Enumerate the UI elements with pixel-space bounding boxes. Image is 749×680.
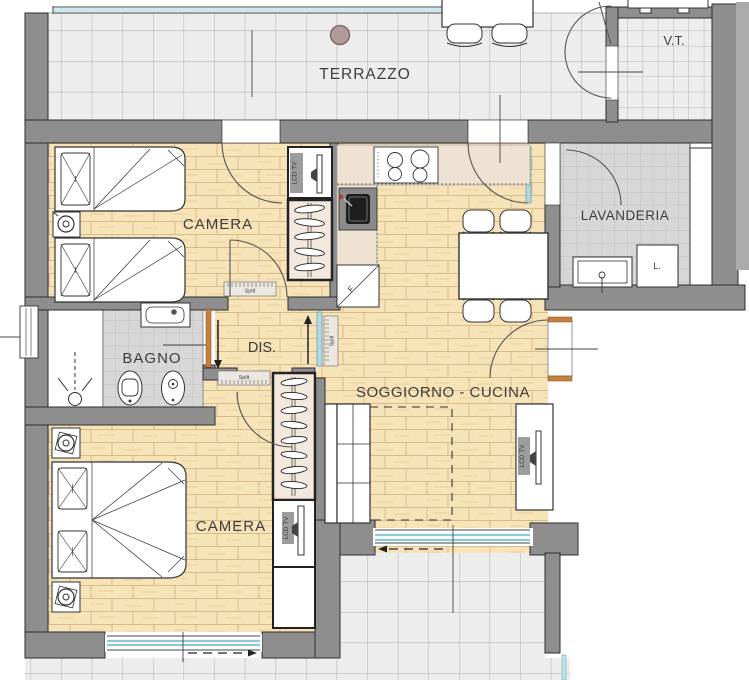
wall-camera2-bottom-l — [25, 632, 105, 658]
split-label-camera2: Split — [239, 375, 250, 381]
nightstand-lamp-top — [52, 428, 80, 458]
floor-plan: TERRAZZO V.T. CAMERA LAVANDERIA L. BAGNO… — [0, 0, 749, 680]
lavanderia-label: LAVANDERIA — [581, 208, 670, 223]
terrace-door-opening-soggiorno — [468, 120, 528, 143]
wall-vt-left-b — [606, 98, 618, 122]
camera1-wardrobe — [288, 200, 332, 280]
nightstand-lamp-bottom — [52, 582, 80, 612]
floor-plan-canvas: TERRAZZO V.T. CAMERA LAVANDERIA L. BAGNO… — [0, 0, 749, 680]
bidet — [162, 371, 185, 405]
wall-terrace-column — [545, 553, 560, 653]
cooktop — [374, 147, 438, 183]
toilet — [118, 371, 142, 405]
door-threshold-top — [548, 317, 572, 322]
wall-bagno-bottom — [25, 407, 215, 425]
washer-label: L. — [653, 261, 661, 271]
wall-right-edge — [736, 2, 749, 270]
nightstand-lamp — [53, 212, 80, 237]
bottom-terrace-floor — [25, 658, 570, 680]
wall-top-2 — [280, 120, 468, 143]
sofa — [325, 404, 370, 523]
split-label-camera1: Split — [245, 289, 256, 295]
camera2-cabinet — [273, 567, 315, 628]
camera2-sliding-window — [105, 634, 262, 652]
bagno-door-leaf — [206, 309, 211, 367]
entry-door-opening — [548, 321, 572, 376]
vt-label: V.T. — [663, 33, 684, 48]
lcd-tv-label-soggiorno: LCD TV — [519, 444, 526, 468]
wall-right — [712, 4, 738, 308]
wall-camera2-bottom-r — [262, 632, 315, 658]
camera2-label: CAMERA — [196, 518, 266, 535]
wall-vt-top — [606, 7, 716, 18]
double-bed — [52, 462, 186, 578]
lcd-tv-label-camera2: LCD TV — [283, 516, 290, 540]
dis-label: DIS. — [248, 340, 276, 356]
door-threshold-bottom — [548, 376, 572, 381]
dis-glass-partition — [317, 312, 322, 366]
camera1-label: CAMERA — [183, 216, 253, 233]
camera2-tv-cabinet — [273, 500, 315, 567]
bathroom-sink — [141, 303, 190, 327]
shaft — [690, 148, 712, 285]
wall-soggiorno-terrace-l — [340, 520, 375, 555]
bagno-label: BAGNO — [122, 350, 181, 367]
terrace-door-opening-camera1 — [222, 120, 280, 143]
lavanderia-door-opening — [545, 143, 560, 205]
soggiorno-label: SOGGIORNO - CUCINA — [356, 384, 530, 401]
vt-door-opening — [606, 46, 618, 100]
split-label-soggiorno: Split — [330, 335, 336, 346]
single-bed-1 — [55, 147, 185, 211]
bagno-window — [20, 306, 38, 358]
wall-vt-left-a — [606, 7, 618, 48]
fridge — [337, 265, 379, 307]
dining-table — [459, 233, 548, 299]
terrazzo-label: TERRAZZO — [319, 66, 411, 83]
wall-lavanderia-bottom — [545, 285, 745, 310]
wall-top-1 — [25, 120, 222, 143]
kitchen-sink — [339, 188, 377, 230]
wall-camera2-right-thick — [315, 520, 340, 658]
terrace-glass-rail — [562, 655, 566, 680]
camera2-wardrobe — [273, 373, 315, 500]
single-bed-2 — [55, 238, 185, 302]
faucet-icon — [339, 195, 343, 199]
wall-soggiorno-terrace-r — [530, 523, 578, 555]
wall-camera1-bottom-r — [288, 297, 340, 310]
terrace-railing — [53, 6, 442, 14]
lcd-tv-label-camera1: LCD TV — [292, 161, 299, 185]
terrace-column-dot — [331, 26, 350, 45]
